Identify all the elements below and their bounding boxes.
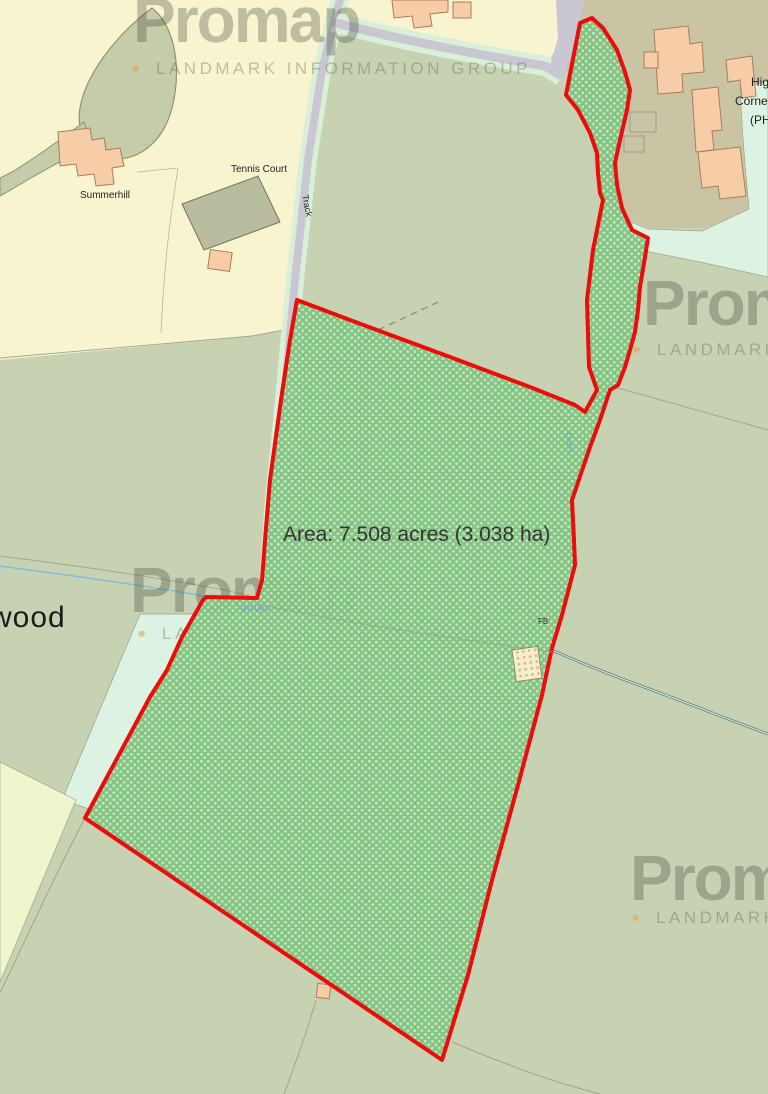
svg-text:LANDMARK INFORMATION GROUP: LANDMARK INFORMATION GROUP bbox=[657, 340, 768, 359]
label-issues: Issues bbox=[243, 604, 269, 613]
label-drain: Drain bbox=[564, 432, 574, 452]
svg-text:●: ● bbox=[631, 909, 640, 926]
svg-text:●: ● bbox=[131, 60, 140, 77]
map-rendering: Promap ● LANDMARK INFORMATION GROUP Prom… bbox=[0, 0, 768, 1094]
svg-text:LANDMARK INFORMATION GROUP: LANDMARK INFORMATION GROUP bbox=[656, 908, 768, 927]
building-garden-shed bbox=[208, 250, 232, 272]
svg-text:●: ● bbox=[137, 625, 146, 642]
svg-text:Promap: Promap bbox=[133, 0, 359, 56]
label-tennis-court: Tennis Court bbox=[231, 165, 287, 175]
building-small-bottom bbox=[316, 983, 330, 998]
label-place-line2: Corne bbox=[735, 95, 768, 107]
map-canvas[interactable]: Promap ● LANDMARK INFORMATION GROUP Prom… bbox=[0, 0, 768, 1094]
svg-text:Promap: Promap bbox=[630, 842, 768, 914]
parcel-area-label: Area: 7.508 acres (3.038 ha) bbox=[283, 524, 550, 545]
label-place-line1: Hig bbox=[751, 76, 768, 88]
svg-text:Promap: Promap bbox=[643, 267, 768, 339]
building-glasshouse bbox=[512, 646, 542, 681]
label-wood: wood bbox=[0, 603, 66, 633]
label-place-line3: (PH bbox=[750, 114, 768, 126]
label-summerhill: Summerhill bbox=[80, 191, 130, 201]
svg-text:LANDMARK INFORMATION GROUP: LANDMARK INFORMATION GROUP bbox=[156, 59, 531, 78]
building-top-centre bbox=[453, 2, 471, 18]
label-footbridge: FB bbox=[538, 618, 548, 626]
